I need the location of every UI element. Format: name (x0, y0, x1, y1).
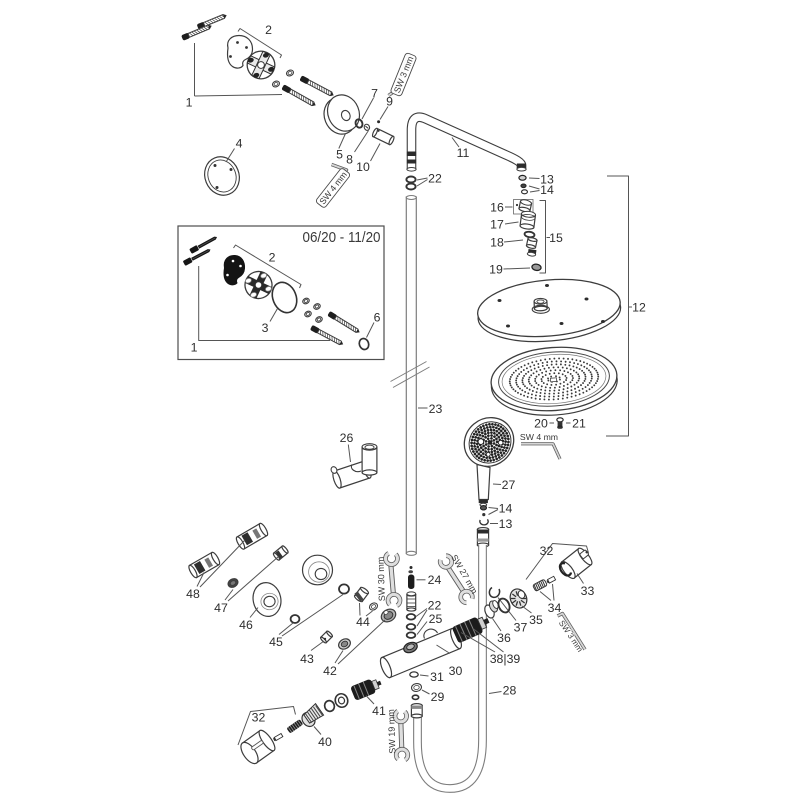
svg-text:10: 10 (356, 160, 370, 174)
svg-text:SW 30 mm: SW 30 mm (375, 557, 387, 602)
svg-text:38|39: 38|39 (490, 652, 521, 666)
svg-text:06/20 - 11/20: 06/20 - 11/20 (303, 229, 381, 246)
svg-text:47: 47 (214, 601, 228, 615)
svg-text:19: 19 (489, 262, 503, 276)
svg-text:32: 32 (252, 710, 266, 724)
svg-text:11: 11 (457, 146, 470, 160)
svg-text:43: 43 (300, 652, 314, 666)
svg-text:SW 4 mm: SW 4 mm (520, 432, 558, 442)
svg-text:48: 48 (186, 587, 200, 601)
svg-text:44: 44 (356, 615, 370, 629)
svg-text:22: 22 (428, 598, 442, 612)
svg-text:34: 34 (548, 601, 562, 615)
svg-text:8: 8 (346, 152, 353, 166)
svg-text:5: 5 (336, 147, 343, 161)
svg-text:7: 7 (371, 86, 378, 100)
svg-text:4: 4 (236, 136, 243, 150)
svg-text:29: 29 (431, 690, 445, 704)
svg-text:45: 45 (269, 635, 283, 649)
svg-text:15: 15 (549, 231, 563, 245)
svg-text:14: 14 (540, 183, 554, 197)
svg-text:1: 1 (191, 340, 198, 354)
svg-text:17: 17 (490, 217, 504, 231)
svg-text:30: 30 (449, 664, 463, 678)
svg-text:42: 42 (323, 664, 337, 678)
svg-text:SW 19 mm: SW 19 mm (386, 709, 398, 754)
svg-text:31: 31 (430, 670, 444, 684)
svg-text:3: 3 (262, 321, 269, 335)
svg-text:28: 28 (503, 683, 517, 697)
svg-text:36: 36 (497, 631, 511, 645)
svg-text:20: 20 (534, 416, 548, 430)
svg-text:21: 21 (572, 416, 586, 430)
svg-text:33: 33 (581, 584, 595, 598)
svg-text:46: 46 (239, 618, 253, 632)
svg-text:25: 25 (429, 612, 443, 626)
svg-text:12: 12 (632, 300, 646, 314)
svg-text:37: 37 (514, 620, 528, 634)
svg-text:24: 24 (428, 573, 442, 587)
svg-text:18: 18 (490, 235, 504, 249)
svg-text:2: 2 (265, 23, 272, 37)
svg-text:23: 23 (429, 402, 443, 416)
svg-text:6: 6 (374, 310, 381, 324)
svg-text:22: 22 (428, 171, 442, 185)
svg-text:27: 27 (502, 478, 516, 492)
svg-text:2: 2 (269, 250, 276, 264)
svg-text:32: 32 (540, 544, 554, 558)
svg-text:13: 13 (499, 517, 513, 531)
svg-text:41: 41 (372, 704, 386, 718)
svg-text:1: 1 (186, 95, 193, 109)
svg-text:14: 14 (499, 501, 513, 515)
svg-text:26: 26 (340, 431, 354, 445)
svg-text:16: 16 (490, 200, 504, 214)
svg-text:40: 40 (318, 735, 332, 749)
svg-text:35: 35 (529, 613, 543, 627)
